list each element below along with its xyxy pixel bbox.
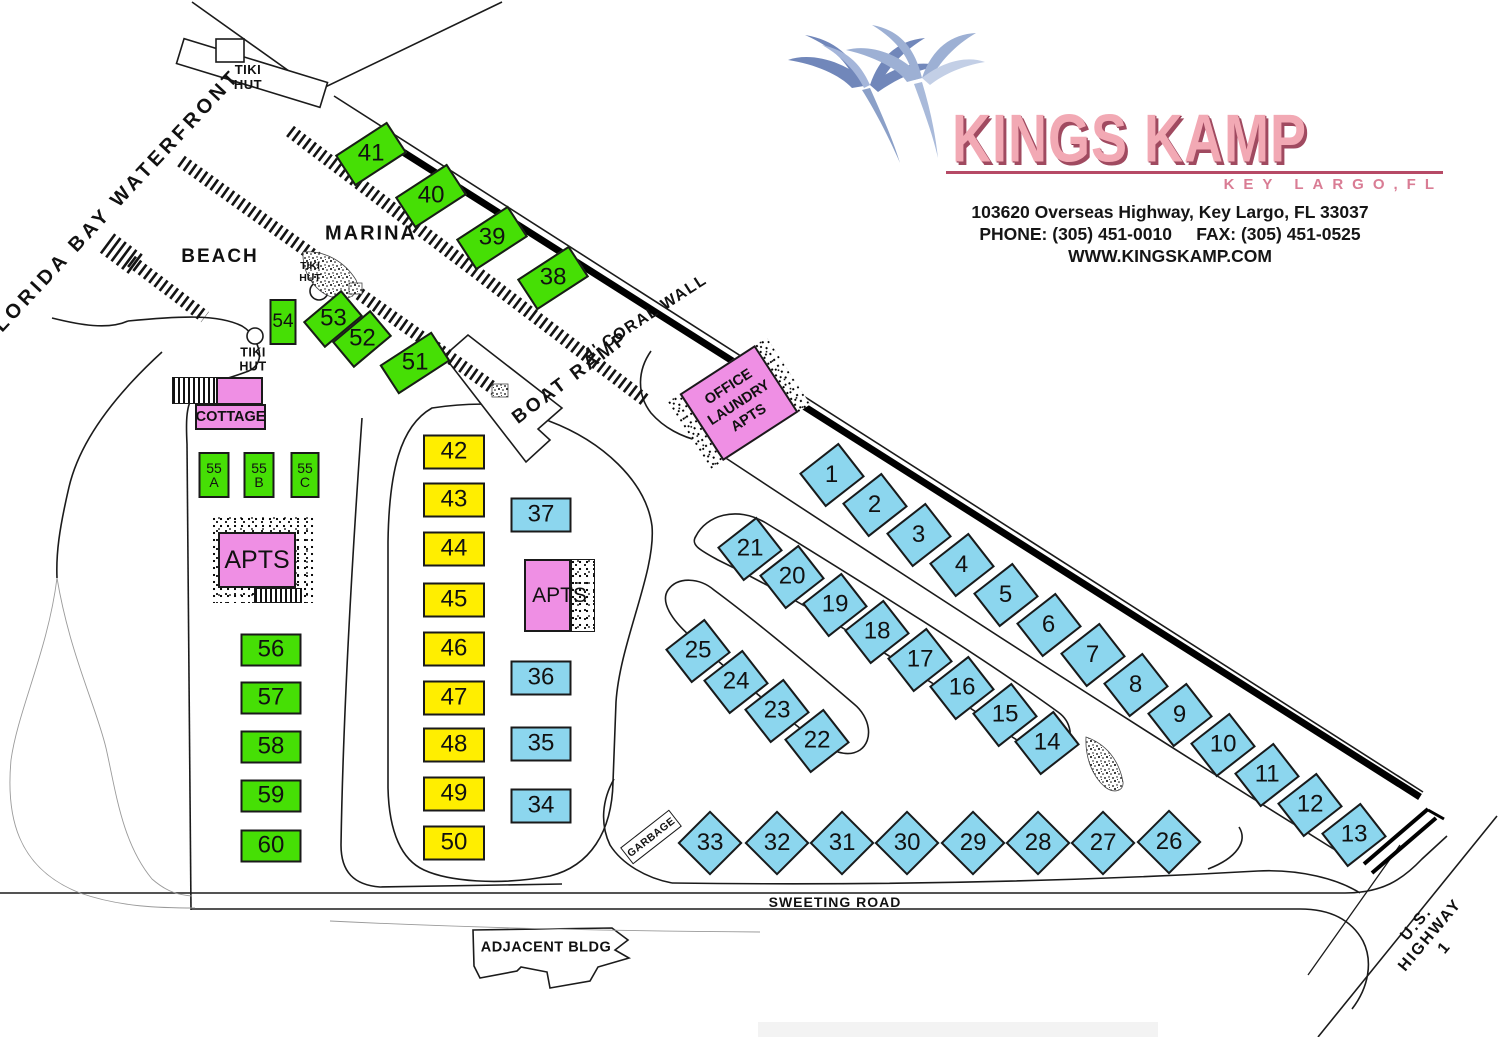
site-59: 59 [241, 780, 302, 813]
apartments-west-porch [254, 588, 302, 603]
site-42: 42 [423, 435, 485, 470]
label-tiki-hut-marina: TIKI HUT [299, 260, 321, 284]
site-50: 50 [423, 826, 485, 861]
contact-block: 103620 Overseas Highway, Key Largo, FL 3… [930, 201, 1410, 267]
cottage-label: COTTAGE [197, 406, 264, 428]
site-57: 57 [241, 682, 302, 715]
label-us-highway-1: U.S. HIGHWAY 1 [1381, 884, 1480, 987]
apartments-west-label: APTS [220, 534, 294, 586]
brand-logo-text: KINGS KAMP [952, 100, 1307, 178]
phone-text: PHONE: (305) 451-0010 [979, 224, 1172, 244]
site-43: 43 [423, 483, 485, 518]
label-boat-ramp: BOAT RAMP [508, 327, 633, 429]
apartments-west-pink: APTS [218, 532, 296, 588]
label-beach: BEACH [181, 246, 259, 268]
phone-fax-line: PHONE: (305) 451-0010 FAX: (305) 451-052… [930, 223, 1410, 245]
site-31: 31 [809, 810, 874, 875]
address-line: 103620 Overseas Highway, Key Largo, FL 3… [930, 201, 1410, 223]
site-33: 33 [677, 810, 742, 875]
site-54: 54 [270, 299, 297, 345]
kings-kamp-site-map: 1234567891011121314151617181920212223242… [0, 0, 1500, 1037]
cottage-roof-hatch [172, 377, 217, 404]
site-27: 27 [1070, 810, 1135, 875]
apartments-center-label: APTS [524, 559, 595, 632]
site-28: 28 [1005, 810, 1070, 875]
site-32: 32 [744, 810, 809, 875]
apartments-west-building: APTS [213, 517, 315, 603]
website-text: WWW.KINGSKAMP.COM [930, 245, 1410, 267]
site-46: 46 [423, 632, 485, 667]
site-48: 48 [423, 728, 485, 763]
site-51: 51 [379, 331, 450, 394]
site-36: 36 [511, 661, 572, 696]
label-adjacent-bldg: ADJACENT BLDG [481, 940, 612, 957]
fax-text: FAX: (305) 451-0525 [1196, 224, 1360, 244]
site-30: 30 [874, 810, 939, 875]
brand-tagline: KEY LARGO,FL [946, 176, 1443, 193]
site-26: 26 [1136, 809, 1201, 874]
site-41: 41 [335, 122, 407, 187]
site-55B: 55 B [244, 452, 275, 498]
brand-underline [946, 171, 1443, 174]
label-sweeting-road: SWEETING ROAD [769, 894, 902, 910]
site-58: 58 [241, 731, 302, 764]
site-44: 44 [423, 532, 485, 567]
site-40: 40 [395, 164, 467, 229]
site-55A: 55 A [199, 452, 230, 498]
apartments-center-building: APTS [524, 559, 595, 632]
site-47: 47 [423, 681, 485, 716]
label-florida-bay-waterfront: FLORIDA BAY WATERFRONT [0, 65, 246, 349]
site-45: 45 [423, 583, 485, 618]
site-34: 34 [511, 789, 572, 824]
site-55C: 55 C [291, 452, 320, 498]
site-56: 56 [241, 634, 302, 667]
cottage-building: COTTAGE [172, 377, 267, 430]
site-35: 35 [511, 727, 572, 762]
site-60: 60 [241, 830, 302, 863]
label-marina: MARINA [325, 223, 417, 246]
cottage-main: COTTAGE [195, 404, 266, 430]
label-tiki-hut-north: TIKI HUT [234, 63, 262, 93]
site-37: 37 [511, 498, 572, 533]
site-49: 49 [423, 777, 485, 812]
site-39: 39 [456, 206, 528, 271]
site-38: 38 [517, 246, 589, 311]
label-tiki-hut-beach: TIKI HUT [239, 346, 266, 375]
cottage-wing [216, 377, 263, 405]
site-29: 29 [940, 810, 1005, 875]
